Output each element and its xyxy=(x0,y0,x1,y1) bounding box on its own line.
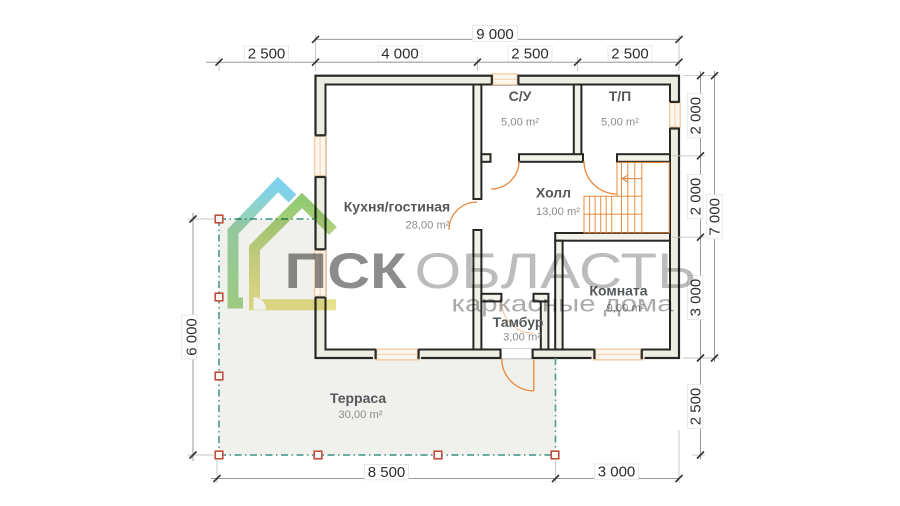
svg-text:5,00 m²: 5,00 m² xyxy=(501,117,539,129)
svg-text:2 500: 2 500 xyxy=(611,46,649,63)
svg-text:Холл: Холл xyxy=(536,185,571,201)
svg-text:4 000: 4 000 xyxy=(381,46,419,63)
svg-text:Терраса: Терраса xyxy=(330,390,386,406)
svg-text:2 500: 2 500 xyxy=(511,46,549,63)
svg-text:Кухня/гостиная: Кухня/гостиная xyxy=(344,199,450,215)
svg-text:ПСК: ПСК xyxy=(285,243,408,299)
svg-text:6 000: 6 000 xyxy=(184,318,201,356)
svg-text:30,00 m²: 30,00 m² xyxy=(338,409,382,421)
svg-text:С/У: С/У xyxy=(509,88,532,104)
svg-text:2 000: 2 000 xyxy=(688,178,705,216)
svg-text:28,00 m²: 28,00 m² xyxy=(405,220,449,232)
svg-text:2 500: 2 500 xyxy=(248,46,286,63)
svg-text:каркасные дома: каркасные дома xyxy=(452,291,674,317)
svg-text:8 500: 8 500 xyxy=(368,464,406,481)
svg-text:7 000: 7 000 xyxy=(707,198,724,236)
svg-text:13,00 m²: 13,00 m² xyxy=(536,206,580,218)
svg-text:3,00 m²: 3,00 m² xyxy=(503,332,541,344)
svg-text:5,00 m²: 5,00 m² xyxy=(601,117,639,129)
svg-text:2 500: 2 500 xyxy=(688,388,705,426)
svg-text:9 000: 9 000 xyxy=(476,26,514,43)
svg-text:2 000: 2 000 xyxy=(688,97,705,135)
svg-text:3 000: 3 000 xyxy=(598,464,636,481)
svg-text:Т/П: Т/П xyxy=(609,88,632,104)
